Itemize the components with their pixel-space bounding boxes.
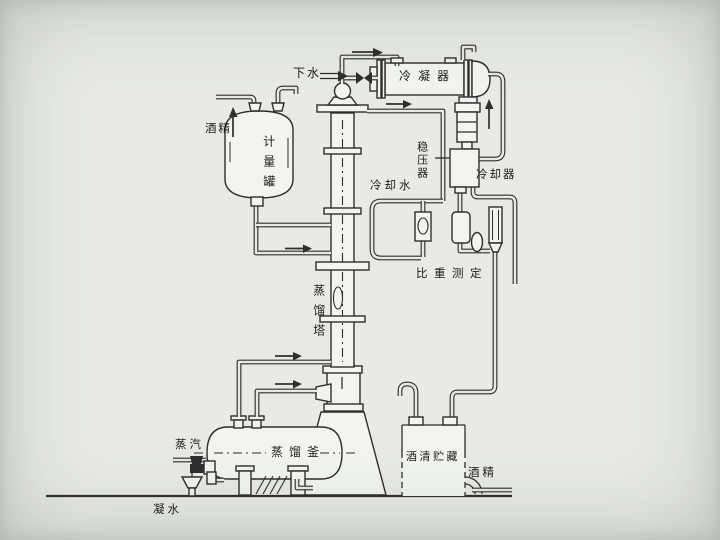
diagram-canvas [0,0,720,540]
label-alcohol-out: 酒精 [468,467,497,480]
label-pressure-stabilizer: 稳压器 [415,141,428,180]
float-device [472,233,483,252]
label-condenser: 冷凝器 [399,70,456,84]
sight-glass-device [415,212,431,241]
label-gravity-measurement: 比重测定 [416,268,488,281]
label-cooling-water: 冷却水 [370,180,414,193]
label-steam: 蒸汽 [175,439,204,452]
label-measuring-tank: 计量罐 [261,135,275,195]
condenser-nozzles [391,58,456,63]
column-sight-glass [334,287,343,309]
label-distillation-kettle: 蒸馏釜 [271,446,325,460]
drain-funnel [182,473,202,496]
inlet-valve-icon [356,72,372,84]
label-distillation-column: 蒸馏塔 [311,284,325,344]
process-flow-diagram: 下水 冷凝器 酒精 计量罐 稳压器 冷却水 冷却器 比重测定 蒸馏塔 蒸馏釜 蒸… [0,0,720,540]
label-drain-water: 下水 [293,67,321,81]
measuring-tank-vessel [225,111,293,198]
storage-tank-nozzles [409,417,457,425]
rotameter-device [452,212,470,243]
hydrometer-cylinder-device [489,207,502,252]
pressure-stabilizer-vessel [455,97,480,149]
label-condensate: 凝水 [153,504,182,517]
label-cooler: 冷却器 [476,169,517,182]
label-alcohol-feed: 酒精 [205,123,232,136]
label-alcohol-storage: 酒清贮藏 [406,451,460,464]
